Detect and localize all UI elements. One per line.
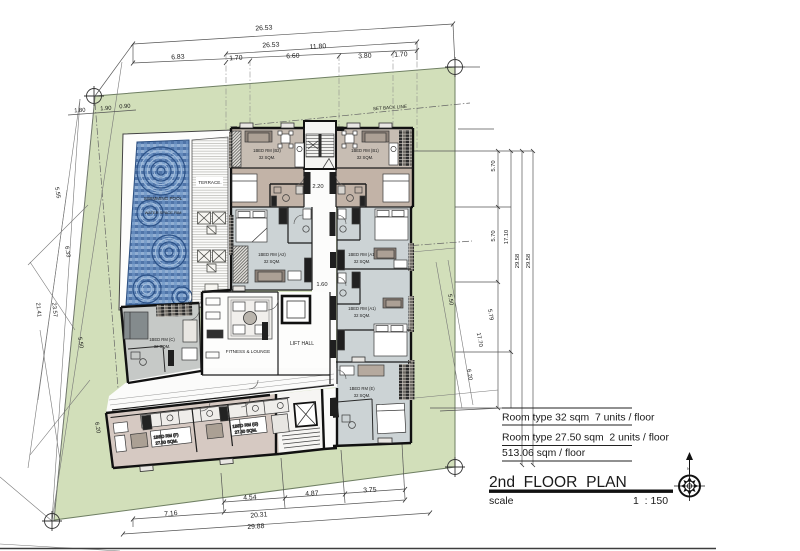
svg-text:4.87: 4.87: [305, 490, 319, 498]
svg-text:1.90: 1.90: [100, 106, 112, 113]
svg-text:WATER SPACE RIM: WATER SPACE RIM: [145, 210, 182, 215]
svg-text:26.53: 26.53: [255, 24, 273, 32]
svg-text:1BED RM (A2): 1BED RM (A2): [258, 252, 286, 257]
svg-text:513.06 sqm / floor: 513.06 sqm / floor: [502, 448, 586, 459]
svg-text:0.90: 0.90: [119, 104, 131, 111]
svg-text:32 SQM.: 32 SQM.: [354, 313, 371, 318]
svg-text:32 SQM.: 32 SQM.: [357, 155, 374, 160]
svg-text:1.60: 1.60: [316, 282, 327, 288]
svg-text:scale: scale: [489, 495, 514, 507]
svg-text:20.31: 20.31: [250, 511, 268, 519]
svg-text:5.70: 5.70: [491, 160, 497, 171]
svg-text:1BED RM (E): 1BED RM (E): [349, 386, 375, 391]
svg-text:1BED RM (A1): 1BED RM (A1): [348, 252, 376, 257]
svg-text:26.53: 26.53: [262, 41, 280, 49]
svg-text:2nd FLOOR PLAN: 2nd FLOOR PLAN: [489, 474, 627, 491]
svg-text:1.70: 1.70: [229, 55, 243, 63]
svg-text:TERRACE.: TERRACE.: [198, 180, 221, 185]
svg-text:11.80: 11.80: [309, 43, 326, 51]
svg-text:5.70: 5.70: [491, 230, 497, 241]
svg-text:LIFT HALL: LIFT HALL: [290, 341, 314, 347]
svg-text:1BED RM (B1): 1BED RM (B1): [351, 148, 379, 153]
svg-text:2.20: 2.20: [312, 184, 323, 190]
svg-text:3.75: 3.75: [363, 487, 377, 495]
svg-text:4.54: 4.54: [243, 494, 257, 502]
svg-text:Room type 32 sqm 7 units / fl: Room type 32 sqm 7 units / floor: [502, 413, 655, 424]
svg-text:29.58: 29.58: [526, 254, 532, 269]
svg-text:1BED RM (B2): 1BED RM (B2): [253, 148, 281, 153]
svg-text:1BED RM (A1): 1BED RM (A1): [348, 306, 376, 311]
svg-text:7.16: 7.16: [164, 510, 178, 518]
svg-text:1.70: 1.70: [394, 51, 408, 59]
svg-text:1 : 150: 1 : 150: [633, 495, 668, 507]
svg-text:SWIMMING POOL: SWIMMING POOL: [144, 196, 183, 201]
svg-text:32 SQM.: 32 SQM.: [354, 393, 371, 398]
svg-text:Room type 27.50 sqm 2 units /: Room type 27.50 sqm 2 units / floor: [502, 433, 669, 444]
svg-text:FITNESS & LOUNGE: FITNESS & LOUNGE: [226, 349, 270, 354]
svg-text:6.60: 6.60: [286, 53, 300, 61]
svg-text:32 SQM.: 32 SQM.: [264, 259, 281, 264]
svg-text:17.10: 17.10: [504, 230, 510, 245]
svg-text:3.80: 3.80: [358, 53, 372, 61]
svg-text:29.58: 29.58: [515, 254, 521, 269]
svg-text:N: N: [687, 466, 690, 471]
svg-text:6.83: 6.83: [171, 54, 185, 62]
svg-text:1.80: 1.80: [74, 108, 86, 115]
svg-text:29.88: 29.88: [247, 523, 265, 531]
svg-text:32 SQM.: 32 SQM.: [259, 155, 276, 160]
svg-text:1BED RM (C): 1BED RM (C): [149, 337, 175, 342]
svg-text:32 SQM.: 32 SQM.: [354, 259, 371, 264]
